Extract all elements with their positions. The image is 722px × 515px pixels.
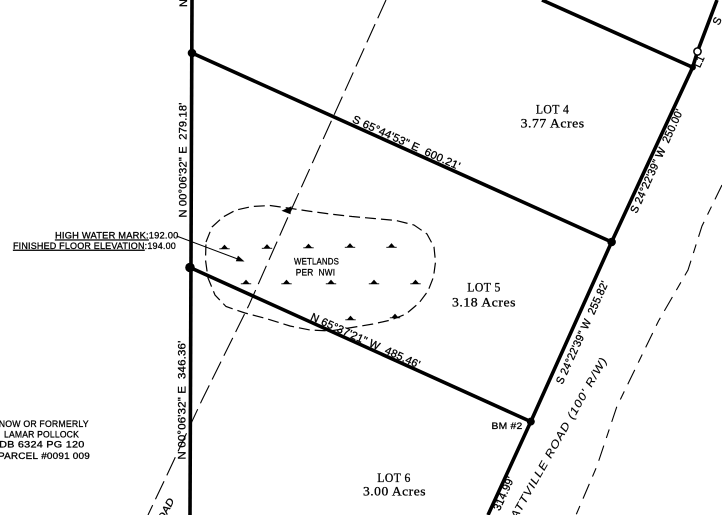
svg-text:PER NWI: PER NWI — [296, 268, 336, 279]
svg-text:DB 6324 PG 120: DB 6324 PG 120 — [0, 440, 85, 451]
svg-text:LOT 4: LOT 4 — [536, 102, 570, 117]
svg-text:3.18 Acres: 3.18 Acres — [452, 295, 516, 310]
svg-text:BM #2: BM #2 — [492, 421, 523, 432]
svg-text:N 00°06'32" E 279.18': N 00°06'32" E 279.18' — [178, 103, 190, 218]
svg-text:3.77 Acres: 3.77 Acres — [521, 116, 585, 131]
svg-text:PARCEL #0091 009: PARCEL #0091 009 — [0, 451, 90, 462]
svg-text:FINISHED FLOOR ELEVATION:194.0: FINISHED FLOOR ELEVATION:194.00 — [13, 241, 176, 252]
svg-text:LOT 5: LOT 5 — [467, 280, 501, 295]
svg-text:3.00 Acres: 3.00 Acres — [363, 484, 426, 499]
svg-text:N 00°06'32" E: N 00°06'32" E — [178, 0, 190, 7]
svg-text:WETLANDS: WETLANDS — [294, 257, 339, 268]
svg-text:N 00°06'32" E 346.36': N 00°06'32" E 346.36' — [177, 341, 189, 460]
